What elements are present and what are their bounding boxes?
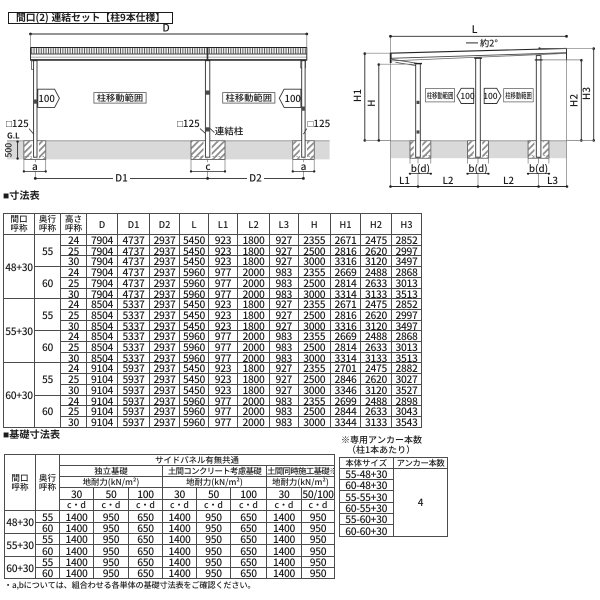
svg-text:100: 100	[284, 91, 301, 105]
svg-text:a: a	[32, 158, 38, 173]
svg-text:□125: □125	[308, 116, 331, 130]
svg-text:100: 100	[460, 90, 475, 102]
svg-text:100: 100	[38, 91, 55, 105]
svg-text:H3: H3	[578, 87, 593, 100]
svg-text:柱移動範囲: 柱移動範囲	[226, 91, 273, 104]
svg-text:b(d): b(d)	[529, 161, 548, 175]
svg-text:c: c	[205, 158, 210, 173]
svg-text:連結柱: 連結柱	[215, 124, 244, 138]
svg-text:L3: L3	[547, 173, 558, 187]
svg-text:a: a	[301, 158, 307, 173]
svg-text:H1: H1	[349, 89, 364, 102]
svg-text:柱移動範囲: 柱移動範囲	[97, 91, 144, 104]
svg-text:柱移動範囲: 柱移動範囲	[427, 91, 454, 102]
svg-text:D1: D1	[115, 170, 128, 185]
svg-text:H: H	[363, 99, 378, 106]
svg-text:b(d): b(d)	[411, 161, 430, 175]
svg-text:L1: L1	[399, 173, 410, 187]
svg-text:L: L	[472, 22, 478, 37]
svg-text:約2°: 約2°	[480, 35, 498, 49]
svg-text:柱移動範囲: 柱移動範囲	[505, 91, 532, 102]
svg-text:b(d): b(d)	[468, 161, 487, 175]
svg-text:D2: D2	[249, 170, 262, 185]
svg-text:L2: L2	[442, 173, 453, 187]
svg-text:L2: L2	[503, 173, 514, 187]
svg-text:500: 500	[3, 143, 15, 158]
svg-text:100: 100	[483, 90, 498, 102]
svg-text:G.L: G.L	[7, 131, 20, 142]
svg-text:□125: □125	[177, 116, 200, 130]
svg-text:□125: □125	[6, 116, 29, 130]
